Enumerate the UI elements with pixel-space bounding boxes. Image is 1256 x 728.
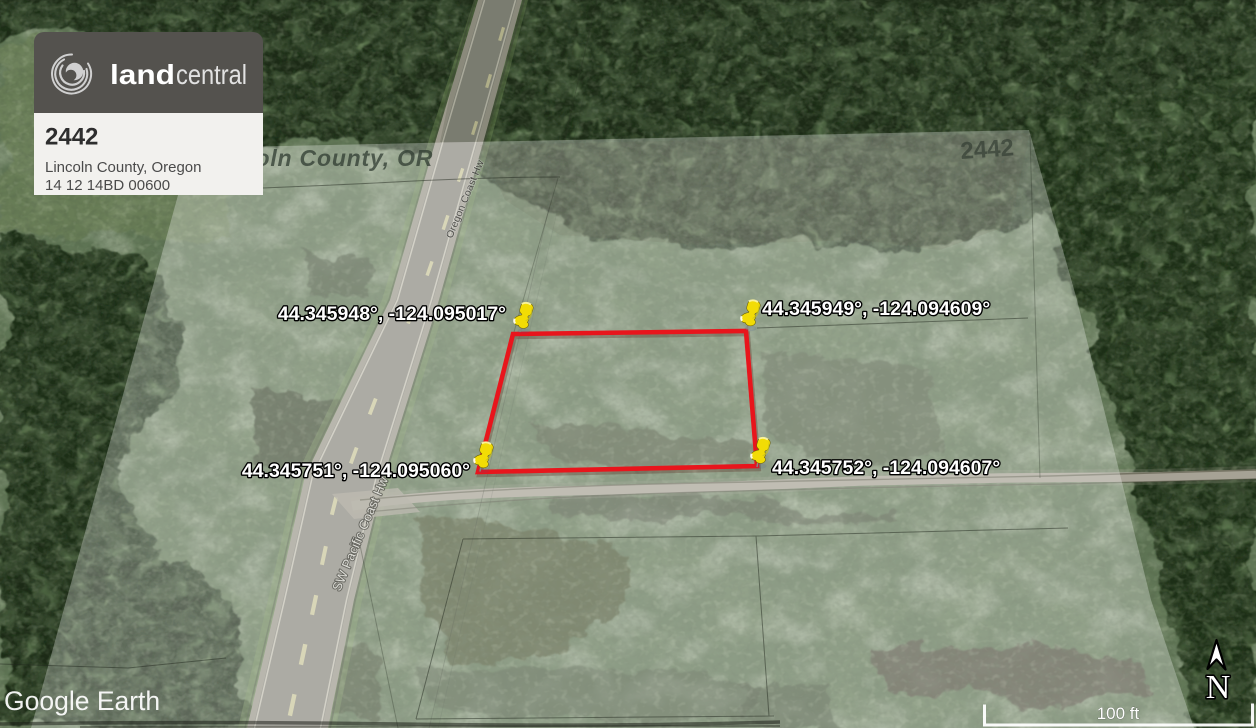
svg-text:N: N — [1206, 669, 1231, 706]
svg-text:2442: 2442 — [960, 134, 1015, 165]
svg-text:land: land — [110, 59, 175, 90]
svg-text:Google Earth: Google Earth — [4, 686, 160, 716]
svg-text:2442: 2442 — [45, 124, 98, 151]
svg-text:central: central — [176, 59, 247, 90]
svg-text:100 ft: 100 ft — [1097, 704, 1140, 723]
svg-text:Lincoln County, Oregon: Lincoln County, Oregon — [45, 159, 201, 176]
svg-text:14 12 14BD 00600: 14 12 14BD 00600 — [45, 177, 170, 194]
svg-text:44.345948°, -124.095017°: 44.345948°, -124.095017° — [278, 303, 506, 325]
svg-text:44.345949°, -124.094609°: 44.345949°, -124.094609° — [762, 298, 990, 320]
svg-text:44.345751°, -124.095060°: 44.345751°, -124.095060° — [242, 460, 470, 482]
svg-text:44.345752°, -124.094607°: 44.345752°, -124.094607° — [772, 457, 1000, 479]
